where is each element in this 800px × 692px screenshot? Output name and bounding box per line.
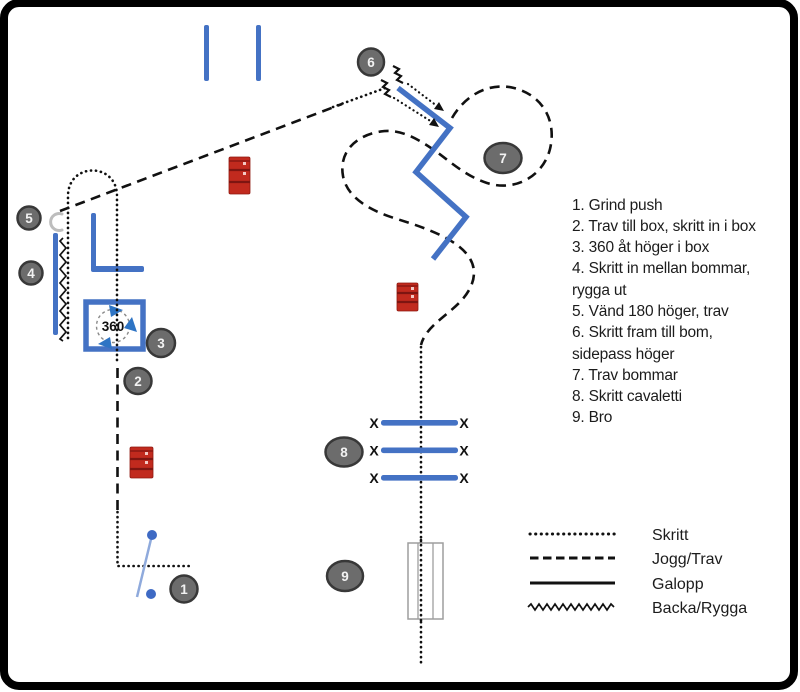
top-pole-right — [256, 25, 261, 81]
instruction-line: 6. Skritt fram till bom, — [572, 324, 713, 341]
cavaletti-end-marker: X — [369, 470, 379, 486]
gate-post-dot — [147, 530, 157, 540]
cavaletti-end-marker: X — [459, 443, 469, 459]
gate-post-dot — [146, 589, 156, 599]
badge-7-label: 7 — [499, 151, 507, 166]
instruction-line: 2. Trav till box, skritt in i box — [572, 218, 756, 235]
badge-8-label: 8 — [340, 445, 348, 460]
badge-6-label: 6 — [367, 55, 375, 70]
legend-label-jogg-trav: Jogg/Trav — [652, 551, 723, 568]
course-diagram-svg: 360 — [0, 0, 800, 692]
cavaletti-end-marker: X — [369, 415, 379, 431]
badge-3-label: 3 — [157, 336, 165, 351]
corridor-pole — [53, 233, 58, 335]
instruction-line: 8. Skritt cavaletti — [572, 388, 682, 405]
cavaletti-end-marker: X — [459, 470, 469, 486]
badge-5-label: 5 — [25, 211, 33, 226]
instruction-line: 4. Skritt in mellan bommar, — [572, 260, 750, 277]
cavaletti-end-marker: X — [369, 443, 379, 459]
legend-label-galopp: Galopp — [652, 576, 704, 593]
instruction-line: rygga ut — [572, 282, 627, 299]
badge-4-label: 4 — [27, 266, 35, 281]
box-360-label: 360 — [102, 319, 125, 334]
barrel-icon — [130, 447, 153, 478]
course-map: 360 — [0, 0, 800, 692]
legend-label-skritt: Skritt — [652, 527, 689, 544]
instruction-line: 7. Trav bommar — [572, 367, 678, 384]
barrel-icon — [397, 283, 418, 311]
badge-1-label: 1 — [180, 582, 188, 597]
badge-2-label: 2 — [134, 374, 142, 389]
cavaletti-end-marker: X — [459, 415, 469, 431]
instruction-line: 1. Grind push — [572, 197, 662, 214]
bridge — [408, 543, 443, 619]
instruction-line: 9. Bro — [572, 409, 612, 426]
l-pole-vertical — [91, 213, 96, 270]
badge-9-label: 9 — [341, 569, 349, 584]
instruction-line: sidepass höger — [572, 346, 674, 363]
top-pole-left — [204, 25, 209, 81]
box-360: 360 — [86, 302, 143, 349]
barrel-icon — [229, 157, 250, 194]
instruction-line: 5. Vänd 180 höger, trav — [572, 303, 729, 320]
instruction-line: 3. 360 åt höger i box — [572, 239, 710, 256]
legend-label-backa-rygga: Backa/Rygga — [652, 600, 747, 617]
